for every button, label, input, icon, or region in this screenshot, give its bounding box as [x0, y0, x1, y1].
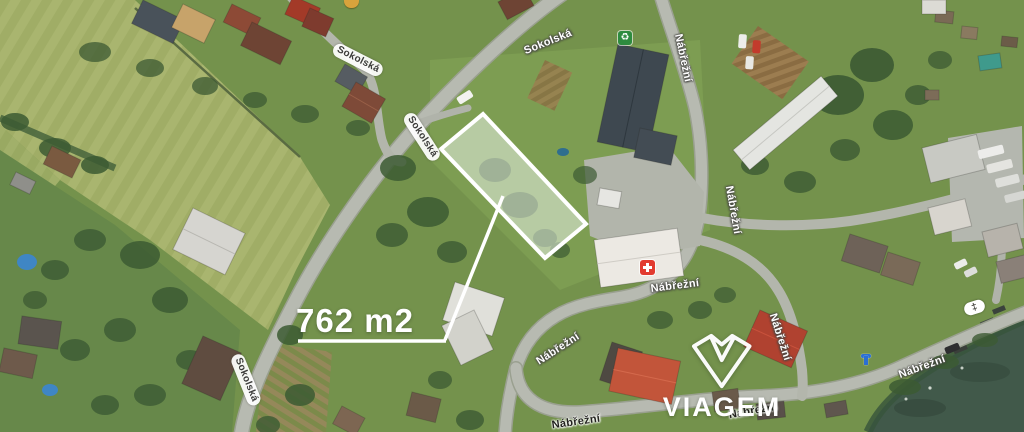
pool	[17, 254, 37, 270]
trampoline	[557, 148, 569, 156]
medical-cross-icon	[640, 260, 655, 275]
aerial-map: Sokolská Sokolská Sokolská Sokolská Nábř…	[0, 0, 1024, 432]
hydrant-icon	[861, 354, 871, 365]
recycling-icon: ♻	[618, 31, 632, 45]
satellite-imagery	[0, 0, 1024, 432]
pool	[42, 384, 58, 396]
plot-area-label: 762 m2	[296, 302, 414, 340]
